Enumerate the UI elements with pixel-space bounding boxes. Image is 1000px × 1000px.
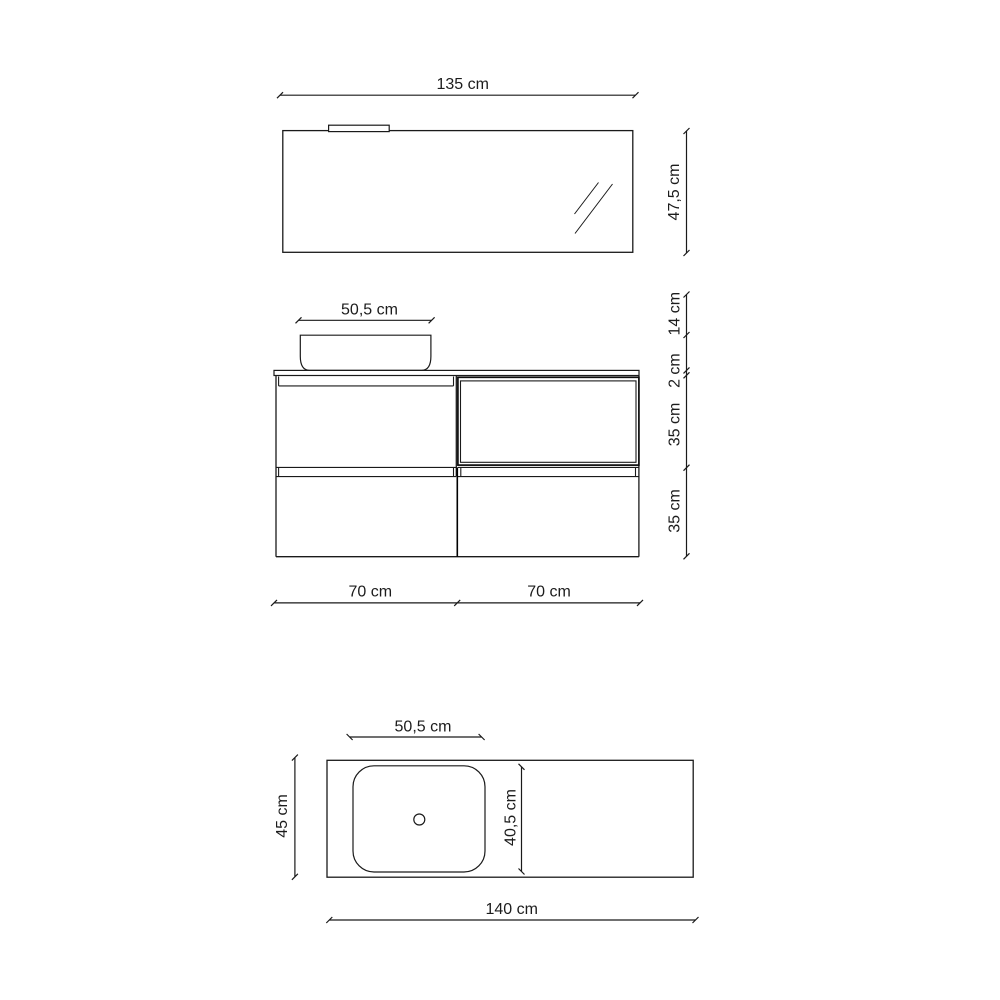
svg-text:14 cm: 14 cm bbox=[667, 292, 684, 336]
svg-text:140 cm: 140 cm bbox=[485, 901, 537, 918]
svg-text:2 cm: 2 cm bbox=[667, 353, 684, 388]
svg-text:50,5 cm: 50,5 cm bbox=[341, 302, 398, 319]
svg-text:35 cm: 35 cm bbox=[667, 403, 684, 447]
svg-text:50,5 cm: 50,5 cm bbox=[395, 719, 452, 736]
svg-text:135 cm: 135 cm bbox=[436, 76, 488, 93]
svg-text:70 cm: 70 cm bbox=[527, 584, 571, 601]
svg-text:40,5 cm: 40,5 cm bbox=[503, 789, 520, 846]
svg-text:70 cm: 70 cm bbox=[349, 584, 393, 601]
svg-text:47,5 cm: 47,5 cm bbox=[666, 164, 683, 221]
svg-text:35 cm: 35 cm bbox=[667, 489, 684, 533]
svg-text:45 cm: 45 cm bbox=[274, 794, 291, 838]
